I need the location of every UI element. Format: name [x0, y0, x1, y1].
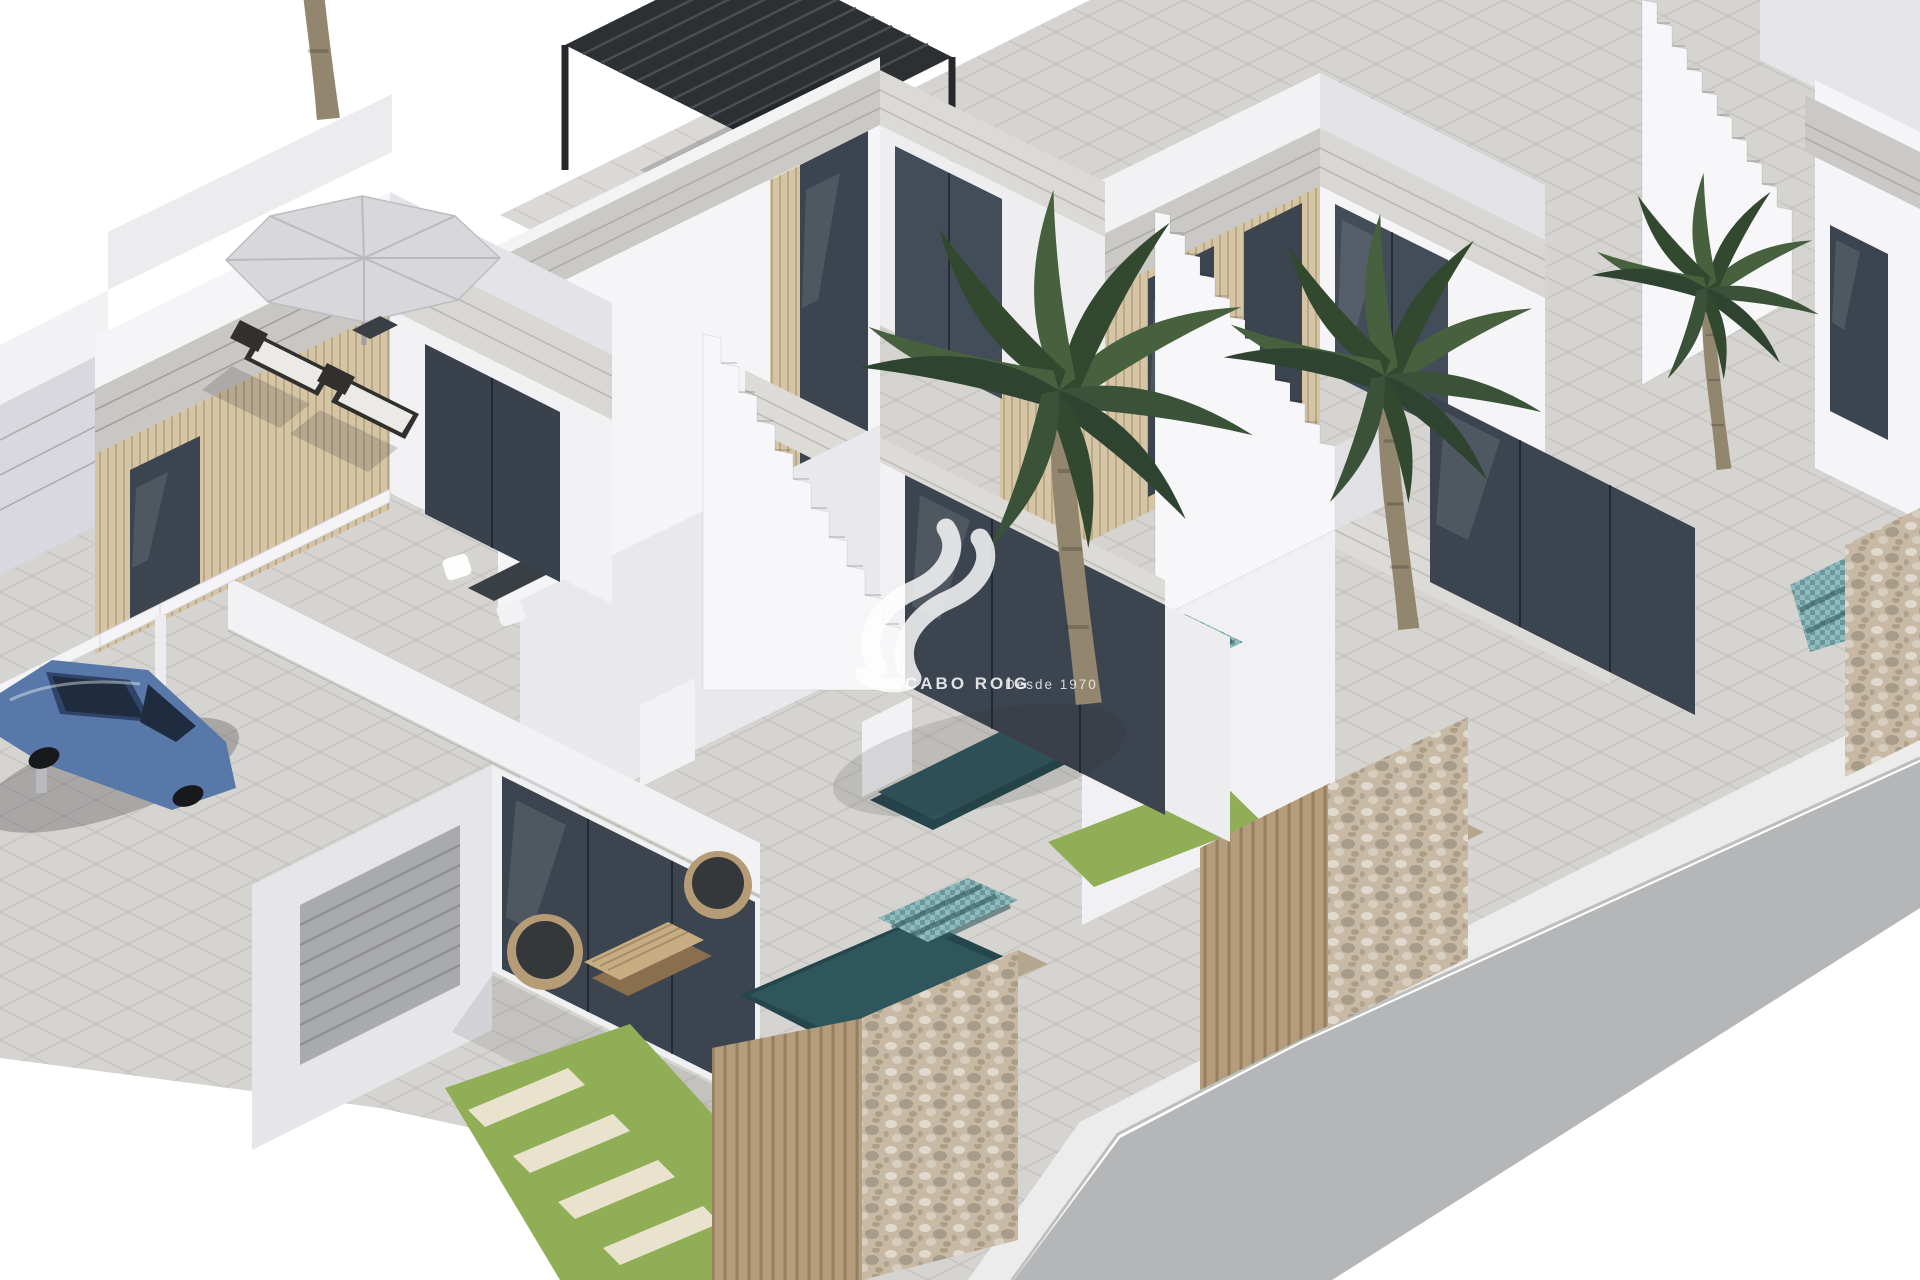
- architectural-render: CABO ROIG Desde 1970: [0, 0, 1920, 1280]
- watermark-tagline: Desde 1970: [1005, 677, 1098, 692]
- stone-wall-right: [1845, 508, 1920, 777]
- wood-fence-left: [712, 1018, 864, 1280]
